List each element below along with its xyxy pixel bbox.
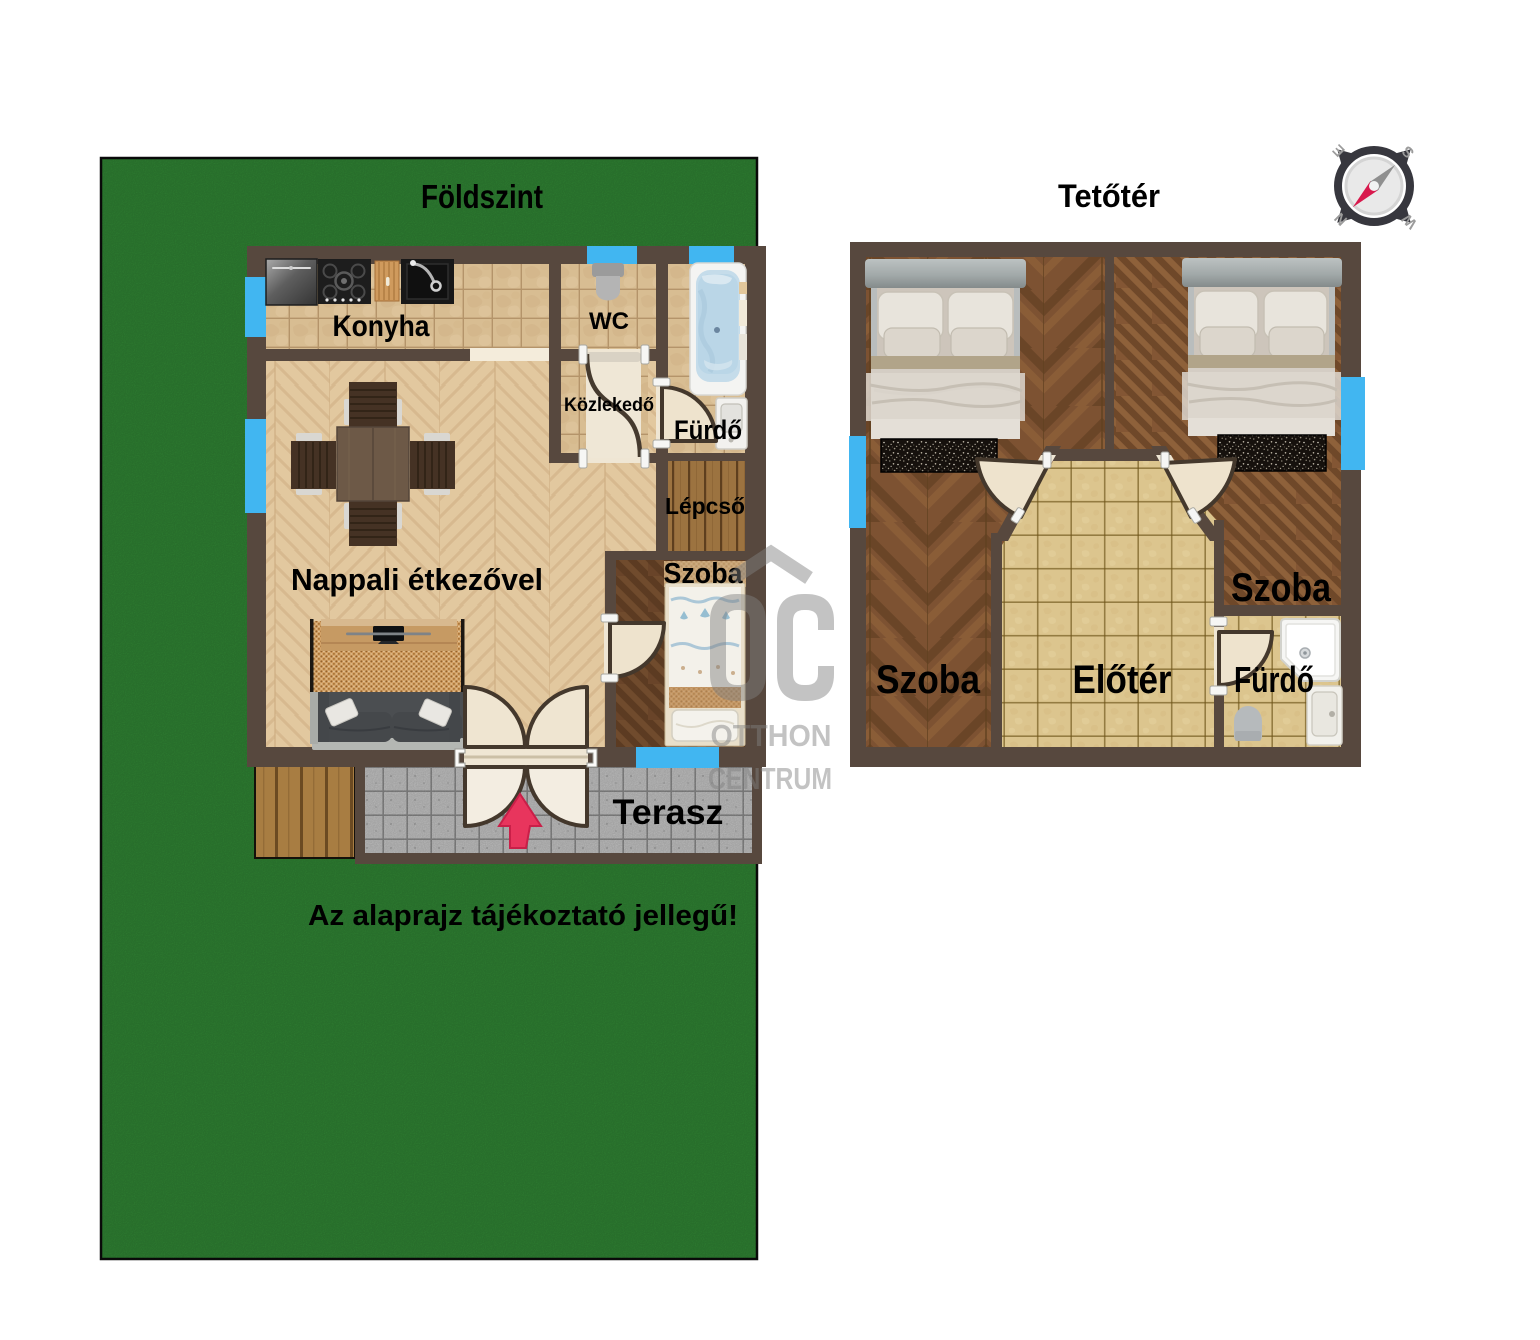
svg-text:Előtér: Előtér	[1073, 658, 1172, 702]
svg-text:OTTHON: OTTHON	[711, 718, 832, 753]
svg-text:Fürdő: Fürdő	[674, 415, 742, 445]
svg-text:Tetőtér: Tetőtér	[1058, 178, 1160, 214]
svg-text:Szoba: Szoba	[1231, 566, 1332, 610]
svg-text:Földszint: Földszint	[421, 179, 543, 216]
svg-text:Közlekedő: Közlekedő	[564, 395, 654, 416]
svg-text:Az alaprajz tájékoztató jelleg: Az alaprajz tájékoztató jellegű!	[308, 900, 738, 932]
svg-text:Szoba: Szoba	[876, 658, 981, 702]
svg-text:WC: WC	[589, 308, 629, 335]
svg-text:CENTRUM: CENTRUM	[708, 761, 832, 796]
svg-text:Fürdő: Fürdő	[1234, 659, 1314, 700]
svg-text:Terasz: Terasz	[613, 793, 724, 832]
svg-text:Lépcső: Lépcső	[665, 493, 745, 519]
svg-text:Konyha: Konyha	[333, 310, 430, 343]
svg-text:Nappali étkezővel: Nappali étkezővel	[291, 562, 543, 597]
